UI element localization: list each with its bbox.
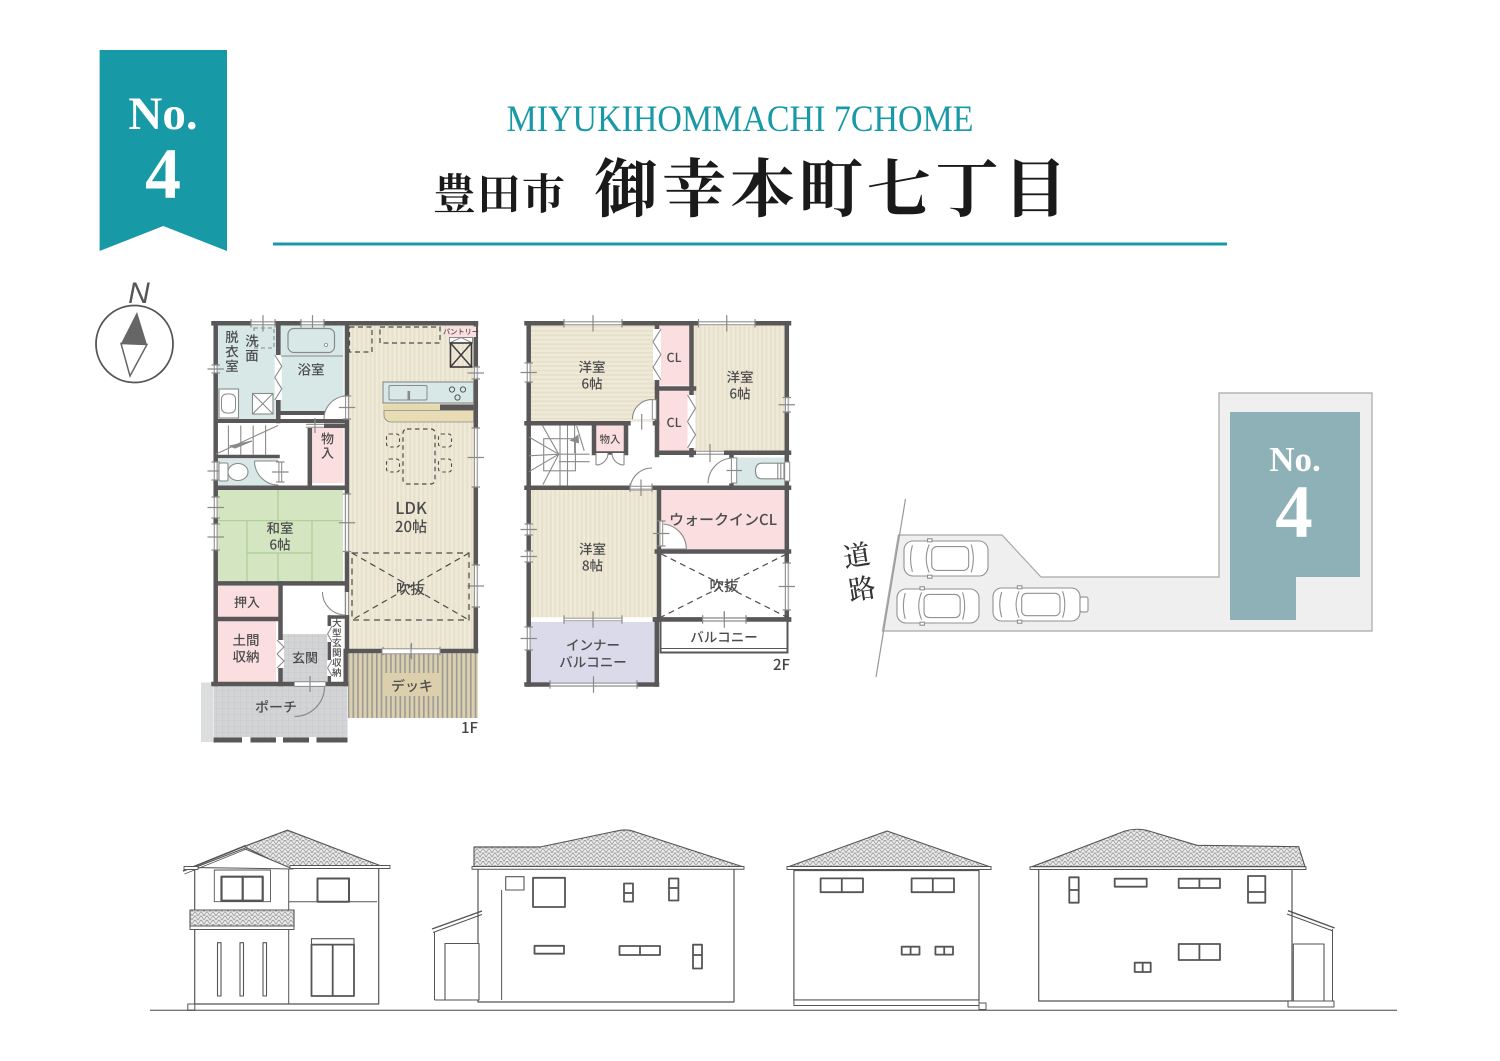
- svg-text:No.: No.: [128, 88, 197, 140]
- svg-text:N: N: [128, 277, 150, 310]
- svg-text:4: 4: [1275, 471, 1313, 554]
- svg-text:4: 4: [145, 134, 181, 214]
- svg-text:MIYUKIHOMMACHI 7CHOME: MIYUKIHOMMACHI 7CHOME: [507, 99, 974, 140]
